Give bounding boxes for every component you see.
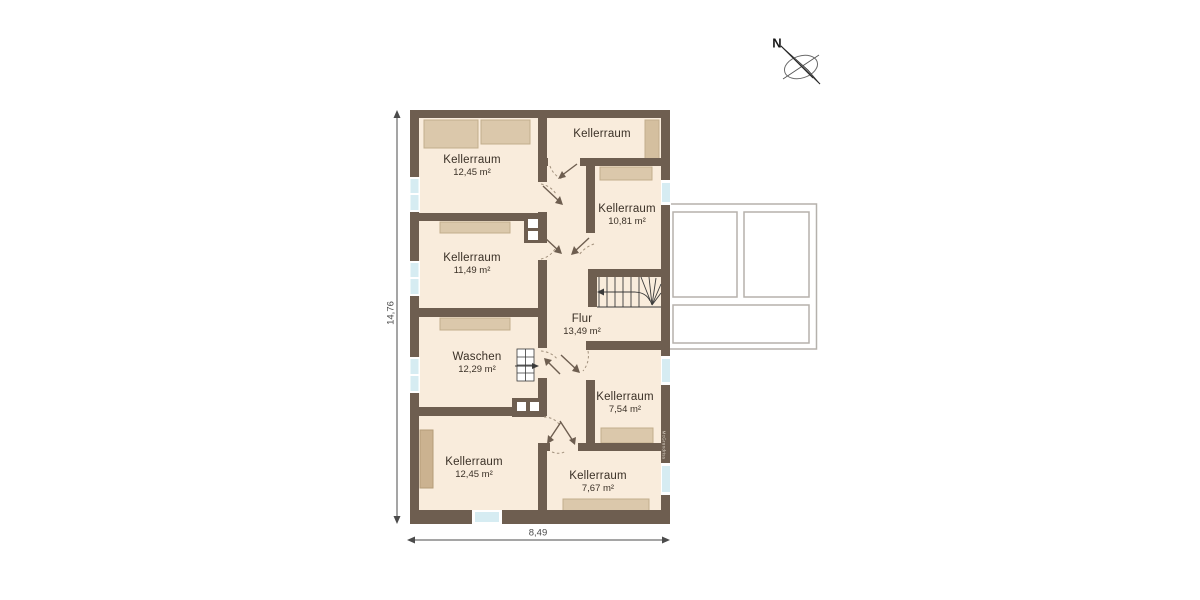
floorplan-drawing <box>0 0 1200 600</box>
annex-outline <box>669 204 817 349</box>
compass-icon <box>781 46 821 84</box>
floorplan-page: N Kellerraum 12,45 m² Kellerraum Kellerr… <box>0 0 1200 600</box>
compass-north-label: N <box>772 36 781 51</box>
